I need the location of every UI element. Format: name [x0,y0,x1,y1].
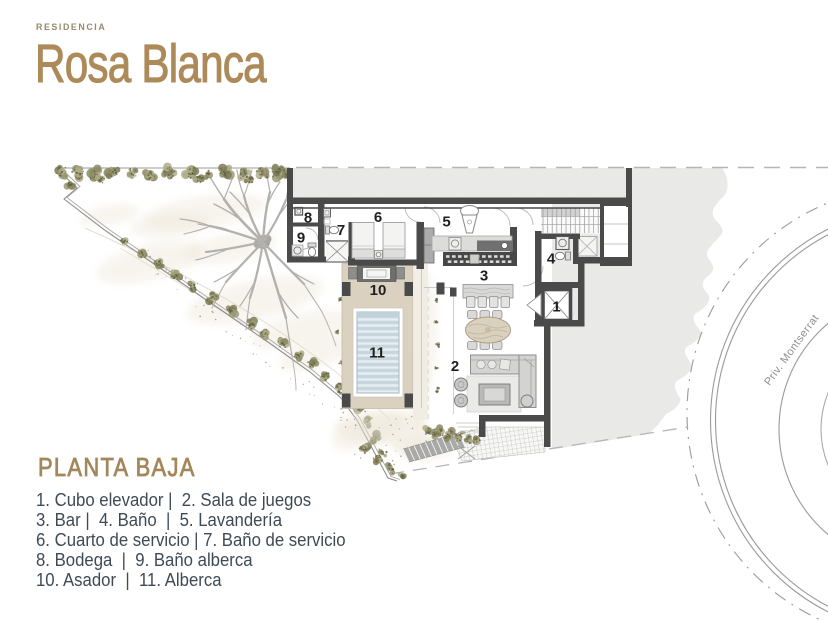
svg-text:9: 9 [297,229,305,246]
svg-text:5: 5 [442,213,450,230]
svg-text:3: 3 [480,267,488,284]
svg-text:7: 7 [337,222,345,239]
svg-text:8: 8 [304,209,312,226]
svg-text:11: 11 [369,344,385,361]
svg-text:10: 10 [370,282,387,299]
svg-text:4: 4 [547,250,556,267]
svg-text:1: 1 [552,298,560,315]
svg-text:6: 6 [374,209,382,226]
svg-text:Priv. Montserrat: Priv. Montserrat [762,312,822,388]
svg-text:2: 2 [451,358,459,375]
